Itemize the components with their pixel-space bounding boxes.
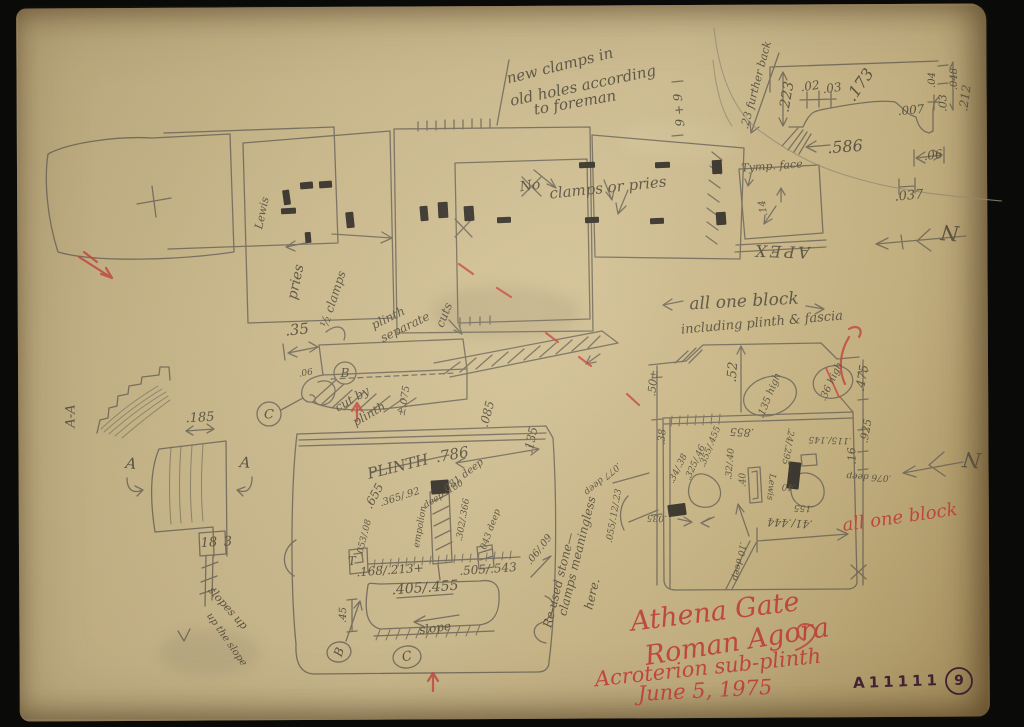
annotation-text: empolion (413, 506, 429, 549)
note-new-clamps: new clamps in (505, 46, 614, 87)
annotation-text: .223 (777, 80, 796, 113)
note-all-one-block: all one block (689, 291, 799, 314)
note-new-clamps: to foreman (533, 88, 618, 117)
annotation-text: No (519, 178, 541, 195)
annotation-text: .50± (646, 369, 660, 397)
section-marker-a: A (125, 456, 137, 472)
annotation-text: .043 deep (479, 508, 503, 553)
annotation-text: .355/.455 (699, 425, 723, 468)
annotation-text: .40 (782, 481, 797, 491)
annotation-text: .135 (522, 426, 539, 455)
annotation-text: .053/.08 (356, 519, 374, 557)
annotation-text: .055/.12/.23 (606, 488, 624, 543)
annotation-text: .38 (657, 429, 668, 446)
circled-c-label: C (264, 409, 274, 422)
annotation-text: .365/.92 (379, 487, 422, 509)
annotation-text: .081 deep (440, 458, 486, 497)
note-reused-stone: here. (582, 577, 601, 610)
annotation-text: .34/.38 (668, 453, 690, 485)
annotation-text: cuts (434, 301, 455, 329)
annotation-text: .037 (894, 188, 924, 203)
annotation-layer: new clamps inold holes accordingto forem… (0, 0, 1024, 727)
annotation-text: slopes up (206, 585, 249, 631)
north-arrow-label: N (962, 448, 982, 471)
annotation-text: .14 (758, 199, 771, 216)
annotation-text: .04 (928, 72, 938, 88)
annotation-text: .077 deep (582, 460, 622, 496)
annotation-text: .32/.40 (725, 448, 737, 480)
annotation-text: .076 deep (846, 470, 891, 481)
annotation-text: .06 (298, 368, 314, 379)
annotation-text: .06/.09 (525, 533, 555, 567)
annotation-text: .06 (923, 148, 944, 163)
annotation-text: .23 further back (739, 40, 773, 130)
annotation-text: 9 + 9 (672, 93, 687, 127)
north-arrow-label: N (940, 221, 960, 244)
annotation-text: plinth (351, 400, 388, 428)
annotation-text: .786 (434, 445, 470, 466)
annotation-text: .10 deep (730, 541, 747, 581)
annotation-text: .168/.213+ (356, 562, 424, 579)
annotation-text: .135 high (756, 372, 783, 420)
annotation-text: .36 high (819, 361, 846, 403)
annotation-text: T (347, 555, 356, 568)
annotation-text: .048 (950, 68, 960, 90)
section-label-aa: A-A (65, 404, 78, 427)
section-marker-a: A (239, 455, 251, 471)
annotation-text: .24/.295 (779, 427, 794, 465)
annotation-text: 18 (200, 536, 217, 550)
annotation-text: .115/.145 (808, 434, 851, 444)
annotation-text: .16 (846, 447, 858, 465)
annotation-text: .035 (647, 512, 667, 522)
annotation-text: .475 (854, 364, 870, 392)
annotation-text: .655 (362, 481, 385, 510)
annotation-text: APEX (752, 242, 810, 260)
annotation-text: .405/.455 (391, 579, 459, 598)
annotation-text: .52 (726, 361, 740, 383)
annotation-text: ½ clamps (318, 269, 347, 328)
annotation-text: Tymp. face (741, 158, 803, 173)
annotation-text: .155 (794, 502, 814, 512)
circled-b-label: B (332, 646, 346, 658)
annotation-text: cut by (333, 384, 372, 413)
annotation-text: .505/.543 (459, 561, 517, 577)
note-reused-stone: Re-used stone— (541, 531, 576, 629)
annotation-text: 3 (223, 535, 232, 549)
annotation-text: Lewis (253, 196, 270, 230)
photo-background: new clamps inold holes accordingto forem… (0, 0, 1024, 727)
circled-c-label: C (401, 650, 413, 665)
annotation-text: .855 (729, 426, 754, 438)
annotation-text: .03 (938, 94, 949, 112)
note-clamps-or-pries: clamps or pries (549, 174, 667, 201)
annotation-text: .03 (822, 81, 843, 96)
annotation-text: PLINTH (366, 452, 430, 482)
annotation-text: .007 (897, 103, 925, 117)
annotation-text: .02 (800, 79, 821, 94)
annotation-text: .40 (740, 473, 749, 487)
annotation-text: plinth (369, 305, 406, 331)
annotation-text: .41/.444 (767, 516, 813, 529)
note-all-one-block: including plinth & fascia (680, 309, 843, 336)
annotation-text: .586 (827, 138, 864, 156)
annotation-text: .35 (284, 321, 309, 338)
note-new-clamps: old holes according (509, 63, 658, 109)
annotation-text: .185 (185, 411, 215, 425)
annotation-text: pries (285, 263, 306, 301)
annotation-text: .45 (339, 607, 350, 623)
annotation-text: .925 (858, 418, 873, 444)
annotation-text: Lewis (764, 473, 776, 500)
annotation-text: separate (379, 310, 432, 344)
annotation-text: .085 (478, 400, 497, 429)
annotation-text: .173 (843, 66, 877, 104)
annotation-text: .212 (957, 84, 973, 112)
annotation-text: ±.075 (397, 385, 412, 417)
annotation-text: slope (418, 620, 451, 636)
annotation-text: .325/.46 (684, 444, 707, 482)
annotation-text: .302/.366 (456, 498, 472, 542)
note-reused-stone: clamps meaningless (556, 495, 597, 617)
circled-b-label: B (341, 367, 350, 379)
annotation-text: deep .180 (423, 479, 466, 511)
annotation-text: up the slope (204, 612, 248, 669)
